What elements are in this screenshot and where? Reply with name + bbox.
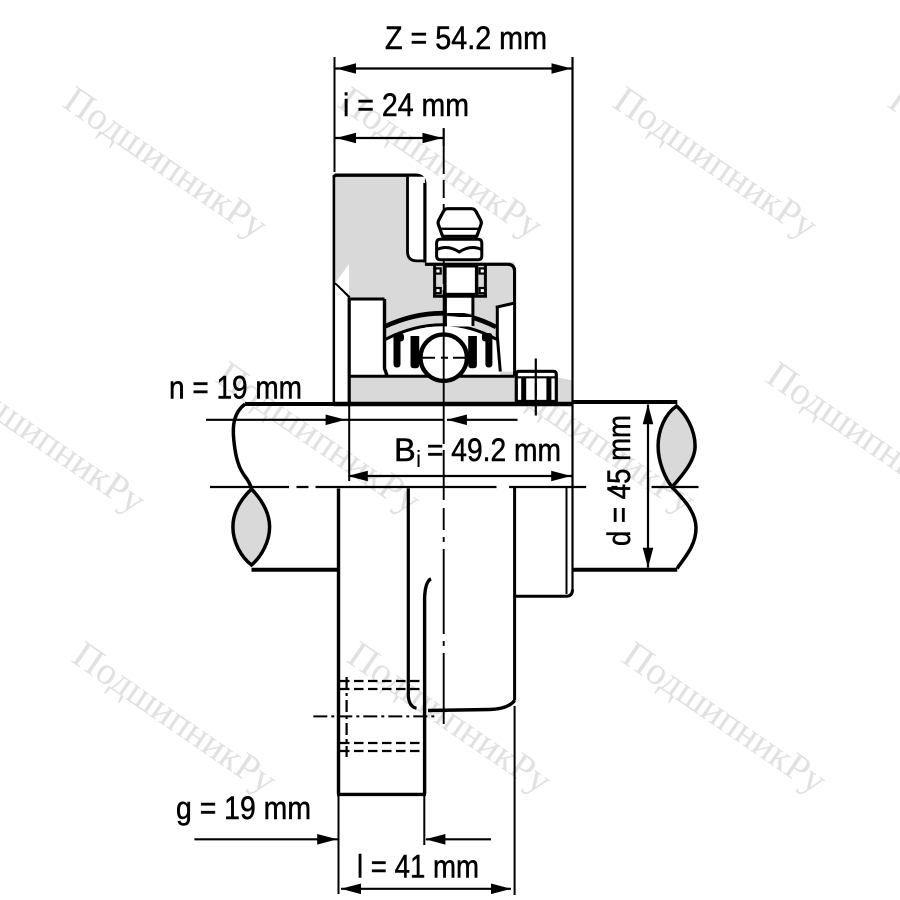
- svg-text:d = 45 mm: d = 45 mm: [601, 415, 637, 546]
- svg-text:g = 19 mm: g = 19 mm: [176, 790, 311, 826]
- svg-text:l = 41 mm: l = 41 mm: [357, 849, 479, 885]
- svg-text:i = 24 mm: i = 24 mm: [343, 87, 469, 123]
- svg-text:= 49.2 mm: = 49.2 mm: [427, 432, 561, 468]
- svg-text:n = 19 mm: n = 19 mm: [169, 370, 302, 406]
- svg-text:B: B: [394, 432, 416, 468]
- svg-text:Z = 54.2 mm: Z = 54.2 mm: [385, 20, 547, 56]
- svg-text:i: i: [416, 446, 421, 472]
